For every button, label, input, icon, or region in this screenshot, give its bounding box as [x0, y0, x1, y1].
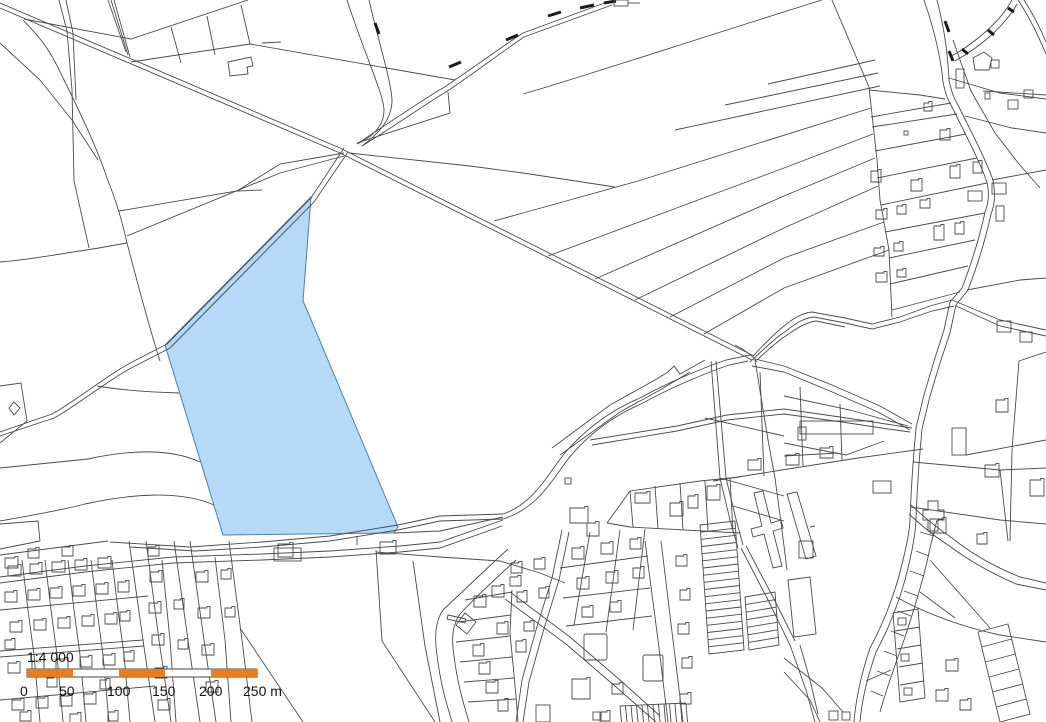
svg-text:250 m: 250 m — [243, 683, 282, 699]
svg-text:1:4 000: 1:4 000 — [27, 649, 74, 665]
svg-text:150: 150 — [152, 683, 176, 699]
svg-text:200: 200 — [199, 683, 223, 699]
svg-text:100: 100 — [107, 683, 131, 699]
svg-text:0: 0 — [20, 683, 28, 699]
svg-text:50: 50 — [59, 683, 75, 699]
